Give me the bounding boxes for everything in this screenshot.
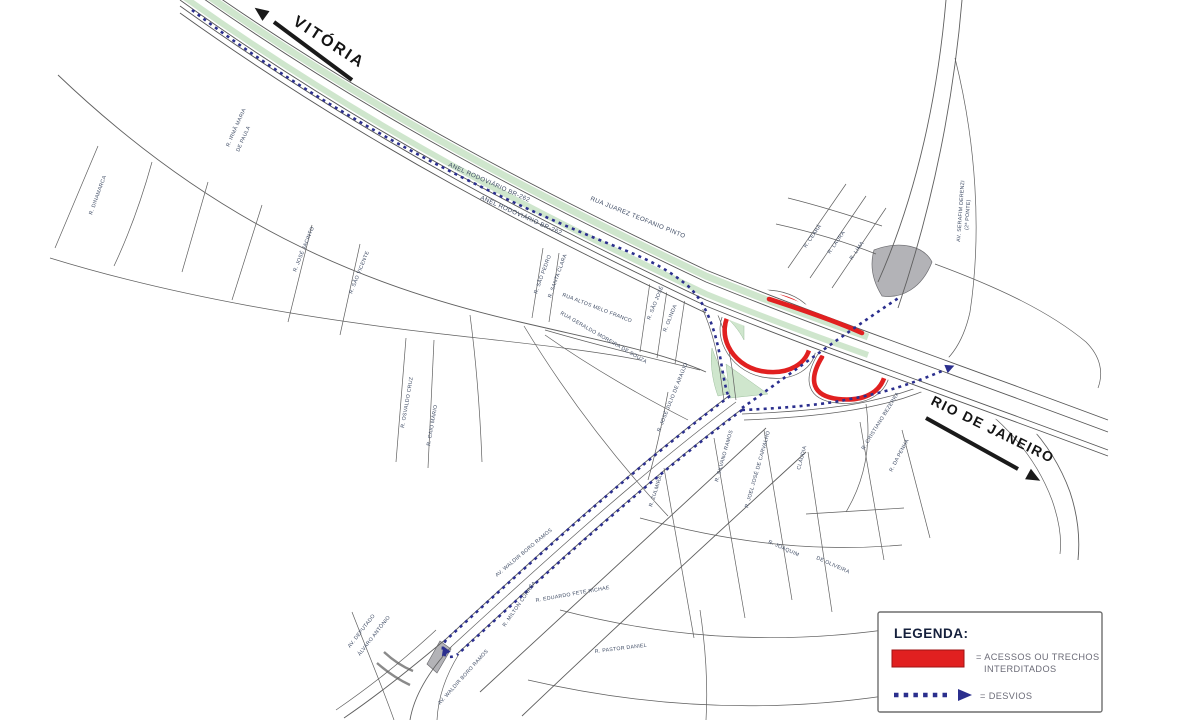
street-line: [352, 612, 394, 720]
street-line: [846, 404, 868, 512]
street-label: R. EDUARDO FETE RICHAE: [535, 585, 610, 604]
street-line: [528, 680, 884, 706]
avenue-median: [452, 402, 736, 646]
map-canvas: ANEL RODOVIÁRIO BR-262 ANEL RODOVIÁRIO B…: [0, 0, 1200, 720]
street-label: R. JOAQUIM: [767, 539, 800, 558]
street-label: R. SÃO VICENTE: [347, 250, 371, 295]
street-label: R. JOSÉ JÚLIO DE ARAÚJO: [655, 361, 689, 432]
street-line: [50, 258, 640, 360]
legend: LEGENDA: = ACESSOS OU TRECHOS INTERDITAD…: [878, 612, 1102, 712]
street-label: CLÁUDIA: [795, 445, 808, 471]
street-label: R. LIMA: [849, 240, 866, 261]
street-label: DE OLIVEIRA: [815, 555, 850, 575]
detour-avenue-west: [446, 396, 730, 640]
legend-closed-label-1: = ACESSOS OU TRECHOS: [976, 652, 1099, 662]
street-line: [182, 182, 208, 272]
street-label: R. CEARÁ: [802, 223, 823, 249]
street-label: (2ª PONTE): [964, 199, 972, 230]
street-line: [232, 205, 262, 300]
street-line: [114, 162, 152, 266]
street-label: R. PASTOR DANIEL: [595, 643, 648, 655]
street-line: [788, 198, 882, 226]
street-label: AV. WALDIR BORO RAMOS: [494, 527, 554, 578]
island-fork-median: [427, 641, 451, 673]
legend-detour-label: = DESVIOS: [980, 691, 1032, 701]
street-label: R. JOSÉ JACINTO: [291, 225, 316, 272]
street-line: [764, 430, 792, 600]
street-line: [664, 468, 694, 638]
street-label: R. DA PENHA: [888, 438, 910, 473]
street-label: R. OLINDA: [662, 304, 678, 333]
street-line: [700, 610, 707, 720]
rio-arrowhead: [1025, 469, 1043, 486]
street-label: R. DINAMARCA: [88, 175, 108, 216]
street-label: R. CAIO MÁRIO: [425, 404, 439, 446]
street-line: [428, 340, 434, 468]
street-line: [522, 452, 806, 716]
island-top-right: [872, 245, 932, 296]
fork-hatch: [384, 652, 413, 671]
street-line: [808, 452, 832, 612]
street-label: R. MILTON CORRÊA: [500, 579, 538, 628]
detour-map: ANEL RODOVIÁRIO BR-262 ANEL RODOVIÁRIO B…: [0, 0, 1200, 720]
street-line: [55, 146, 98, 248]
legend-closed-swatch: [892, 650, 964, 667]
legend-closed-label-2: INTERDITADOS: [984, 664, 1057, 674]
street-line: [806, 508, 904, 514]
street-label: AV. DEPUTADO: [347, 613, 377, 649]
legend-title: LEGENDA:: [894, 626, 969, 641]
street-line: [648, 392, 668, 480]
street-line: [878, 0, 946, 282]
street-label: R. SÃO JOSÉ: [645, 285, 665, 321]
street-line: [560, 610, 884, 638]
